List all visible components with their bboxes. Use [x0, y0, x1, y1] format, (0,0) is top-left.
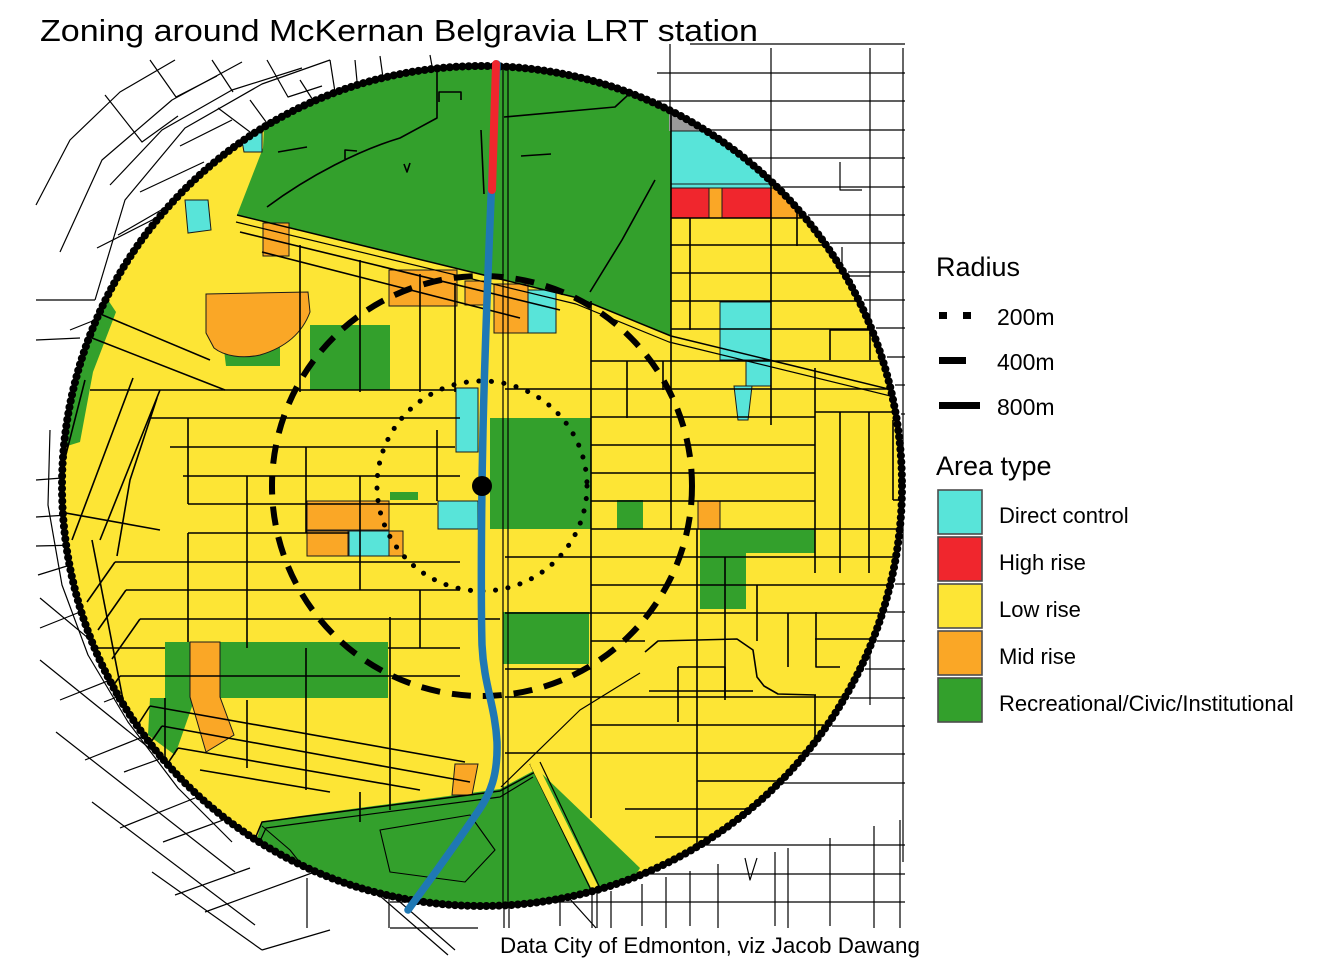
svg-text:Zoning around McKernan Belgrav: Zoning around McKernan Belgravia LRT sta… — [40, 13, 758, 48]
svg-text:Data City of Edmonton, viz Jac: Data City of Edmonton, viz Jacob Dawang — [500, 933, 920, 958]
svg-text:Direct control: Direct control — [999, 503, 1129, 528]
svg-text:Recreational/Civic/Institution: Recreational/Civic/Institutional — [999, 691, 1294, 716]
svg-text:400m: 400m — [997, 349, 1055, 375]
svg-text:Area type: Area type — [936, 451, 1052, 481]
svg-text:200m: 200m — [997, 304, 1055, 330]
svg-text:High rise: High rise — [999, 550, 1086, 575]
svg-text:Low rise: Low rise — [999, 597, 1081, 622]
svg-text:800m: 800m — [997, 394, 1055, 420]
svg-text:Mid rise: Mid rise — [999, 644, 1076, 669]
svg-text:Radius: Radius — [936, 252, 1020, 282]
